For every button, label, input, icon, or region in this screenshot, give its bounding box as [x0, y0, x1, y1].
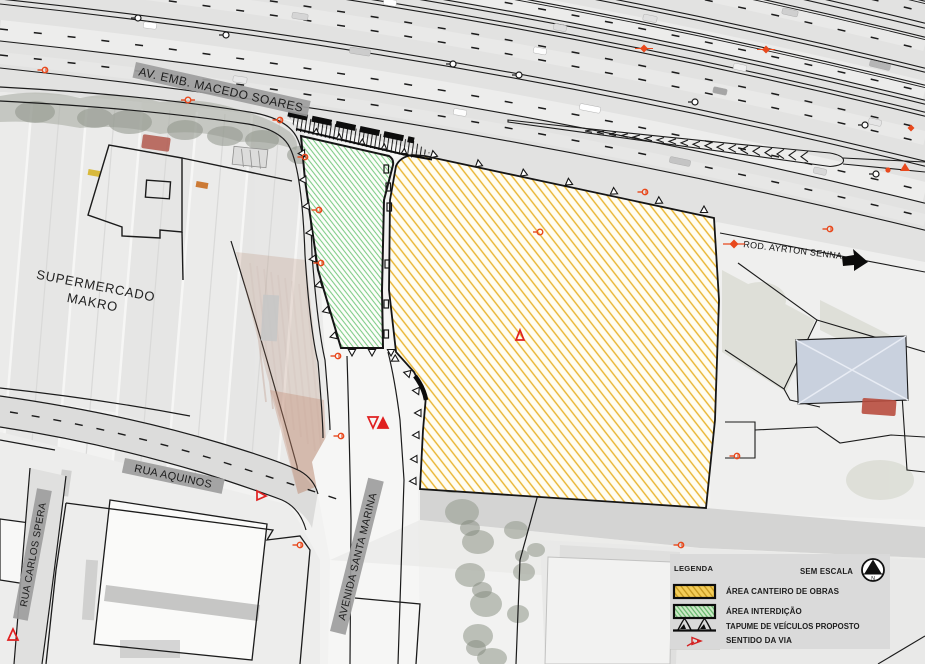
svg-text:TAPUME DE VEÍCULOS PROPOSTO: TAPUME DE VEÍCULOS PROPOSTO	[726, 622, 860, 631]
svg-text:ÁREA CANTEIRO DE OBRAS: ÁREA CANTEIRO DE OBRAS	[726, 587, 840, 596]
svg-text:SENTIDO DA VIA: SENTIDO DA VIA	[726, 636, 792, 645]
svg-text:N: N	[871, 576, 875, 582]
svg-text:LEGENDA: LEGENDA	[674, 564, 713, 573]
svg-text:SEM ESCALA: SEM ESCALA	[800, 567, 853, 576]
svg-text:ÁREA INTERDIÇÃO: ÁREA INTERDIÇÃO	[726, 607, 802, 616]
